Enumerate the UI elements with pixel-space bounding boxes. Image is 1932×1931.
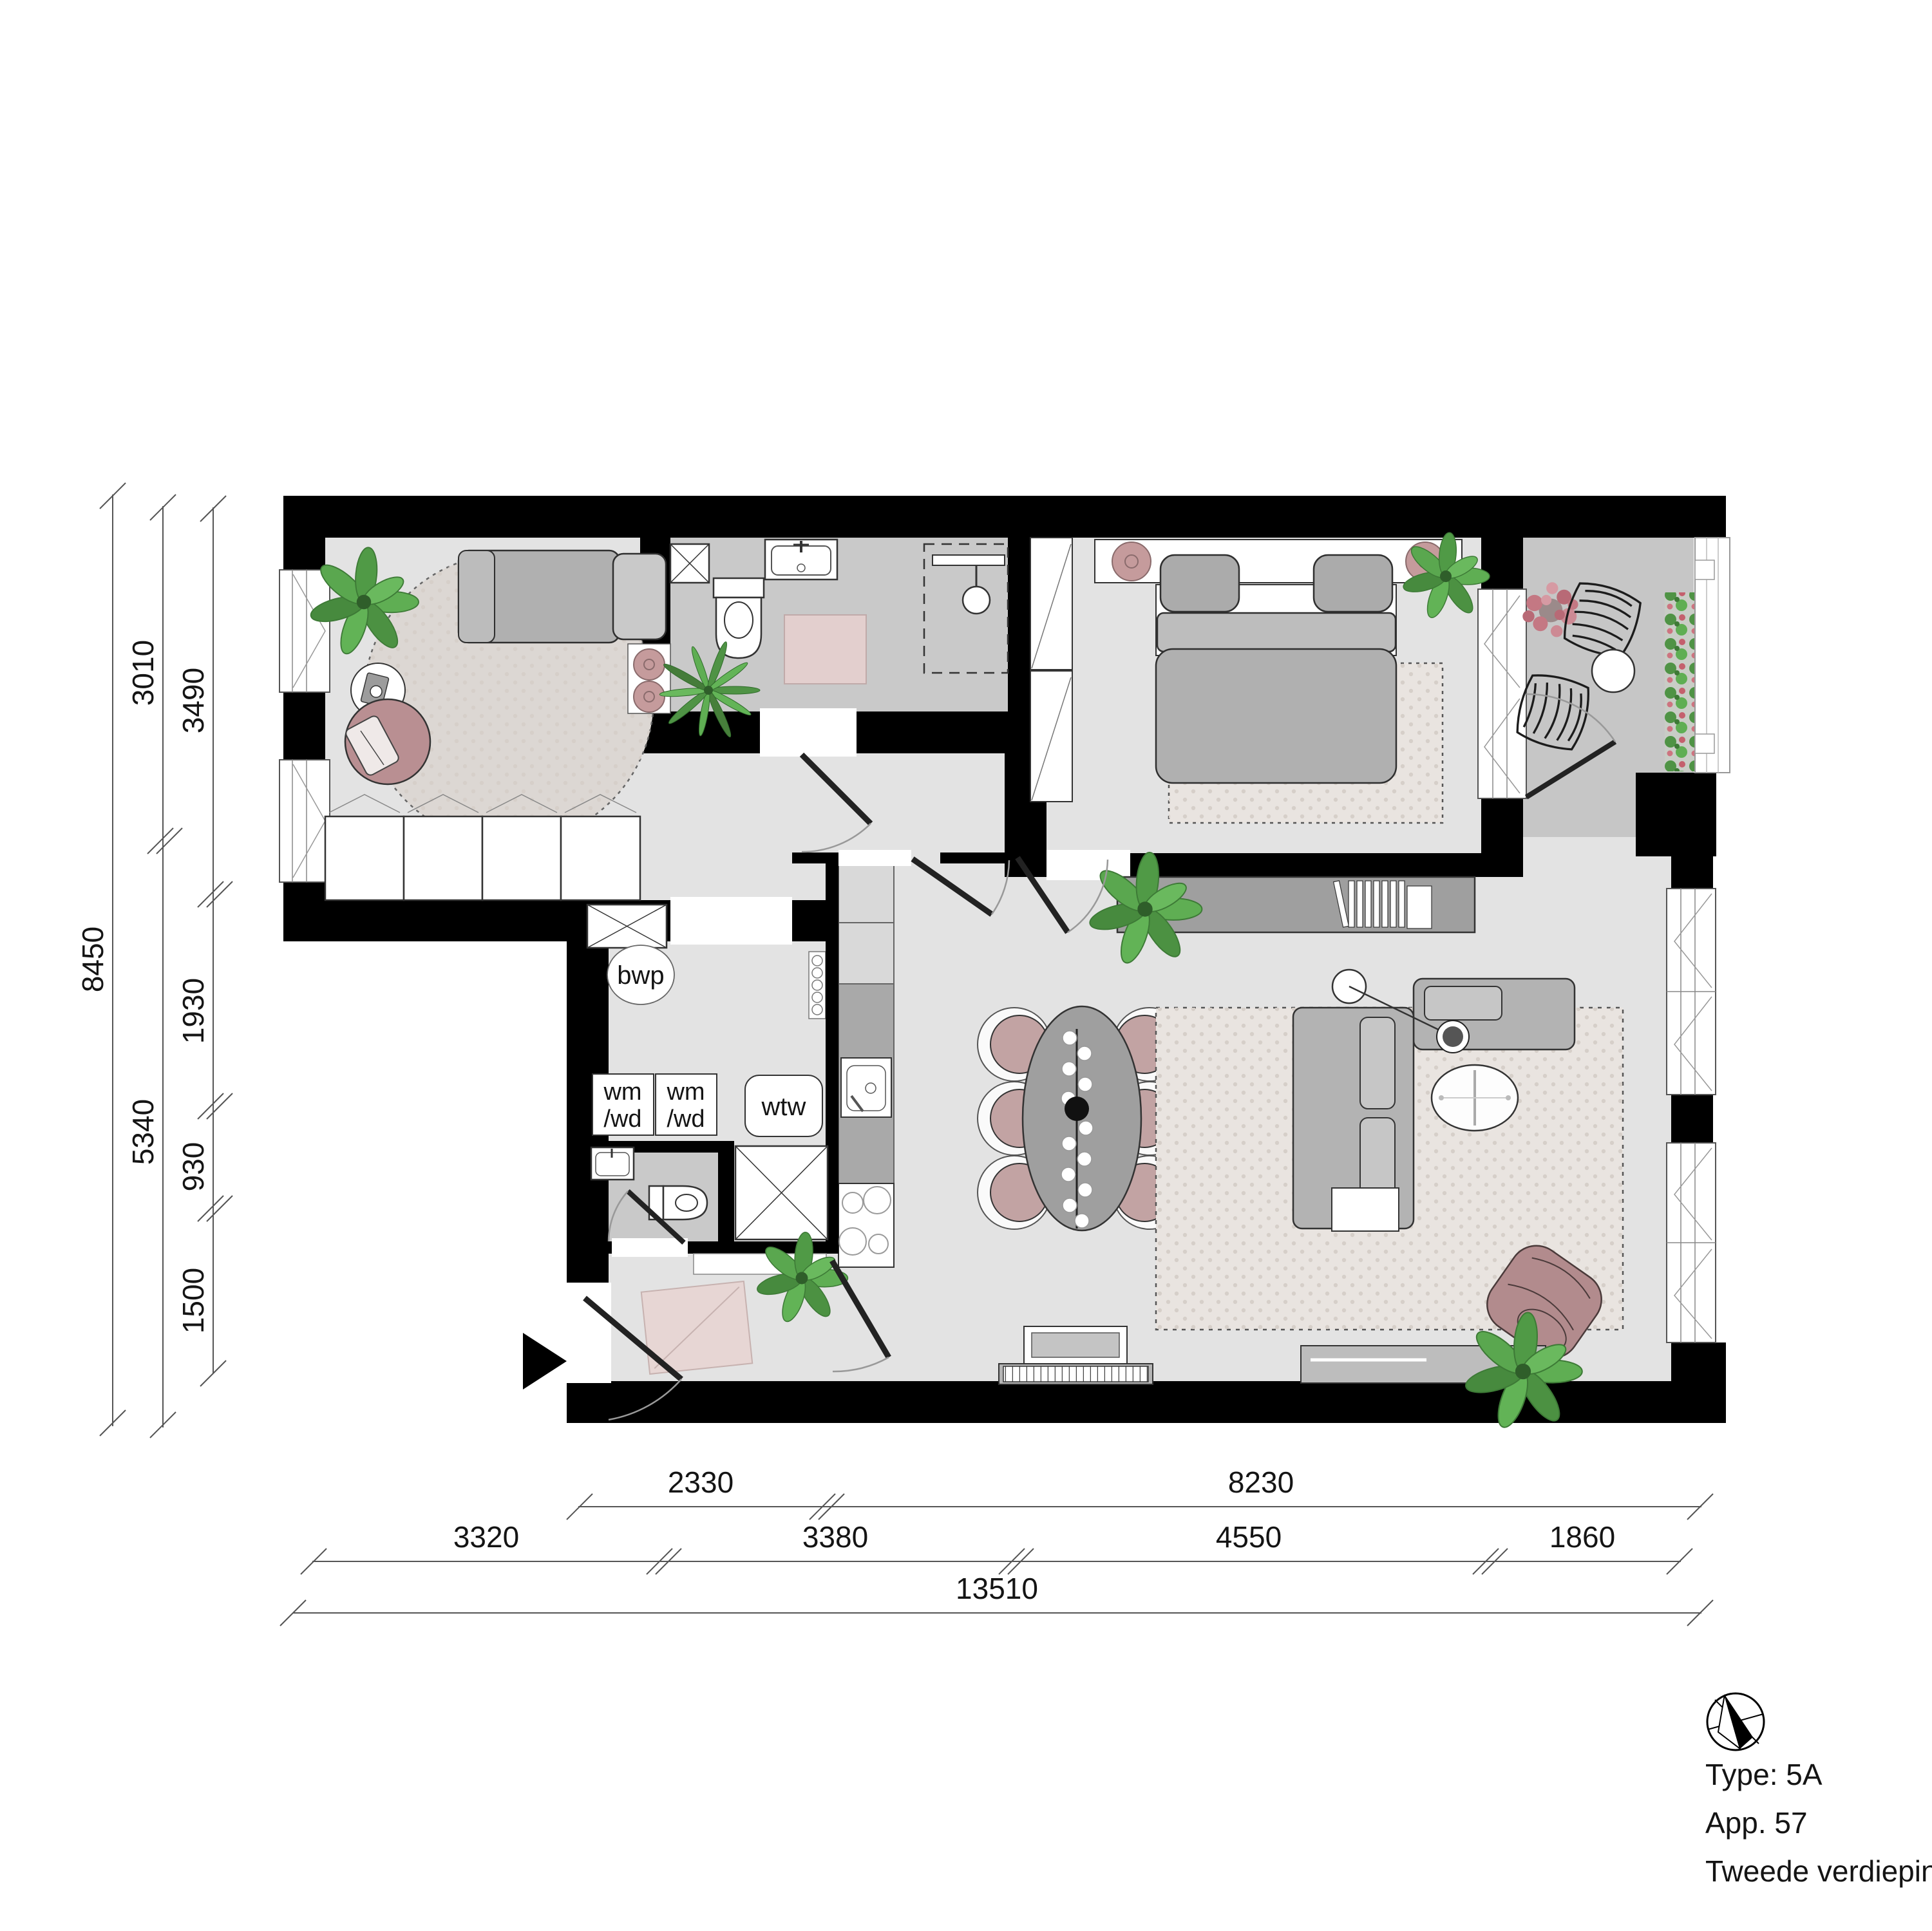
- svg-text:5340: 5340: [126, 1099, 160, 1165]
- balcony-table: [1592, 650, 1634, 692]
- floor-label: Tweede verdieping: [1705, 1854, 1932, 1888]
- svg-text:wtw: wtw: [761, 1093, 806, 1121]
- svg-text:/wd: /wd: [667, 1106, 705, 1133]
- svg-text:wm: wm: [666, 1079, 705, 1106]
- svg-text:2330: 2330: [668, 1465, 734, 1499]
- wall-right-corner: [1671, 1342, 1726, 1407]
- svg-text:3490: 3490: [176, 668, 210, 733]
- dimension-left: [100, 483, 232, 1438]
- toilet-bathroom: [714, 578, 764, 658]
- armchair-pink-room2: [344, 699, 430, 784]
- manifold-panel: [809, 952, 826, 1019]
- headboard-shelf: [1095, 540, 1462, 583]
- bwp-label: bwp: [617, 961, 664, 990]
- window-right-1: [1667, 889, 1716, 1095]
- shower-cabin: [735, 1146, 828, 1239]
- svg-text:4550: 4550: [1216, 1520, 1282, 1554]
- wall-right-pier-1: [1671, 856, 1713, 889]
- svg-text:3010: 3010: [126, 640, 160, 706]
- window-right-2: [1667, 1143, 1716, 1342]
- wall-toilet-right: [718, 1141, 734, 1241]
- double-bed: [1156, 555, 1396, 783]
- bedroom-closet: [1030, 538, 1072, 802]
- washer-2: wm /wd: [656, 1074, 717, 1135]
- kitchen-cooktop: [838, 1183, 894, 1267]
- floorplan-page: bwp wm /wd wm /wd wtw: [0, 0, 1932, 1931]
- north-arrow-icon: [1707, 1693, 1764, 1750]
- room-2: [308, 547, 670, 900]
- wall-step: [283, 900, 609, 941]
- washer-1: wm /wd: [592, 1074, 654, 1135]
- svg-text:wm: wm: [603, 1079, 641, 1106]
- svg-text:930: 930: [176, 1142, 210, 1192]
- wall-balcony-block: [1636, 773, 1716, 856]
- svg-text:13510: 13510: [956, 1572, 1038, 1605]
- kitchen-counter: [838, 863, 894, 1267]
- vanity-sink: [765, 540, 837, 579]
- svg-text:/wd: /wd: [603, 1106, 641, 1133]
- window-left-2: [279, 760, 330, 882]
- svg-text:3380: 3380: [802, 1520, 868, 1554]
- svg-text:1930: 1930: [176, 978, 210, 1044]
- wtw-unit: wtw: [745, 1075, 822, 1136]
- title-block: Type: 5A App. 57 Tweede verdieping: [1705, 1758, 1932, 1888]
- wall-hall-thin-left: [792, 852, 838, 863]
- svg-text:3320: 3320: [453, 1520, 519, 1554]
- ottoman: [1332, 1188, 1399, 1231]
- entry-arrow-icon: [523, 1333, 567, 1389]
- record-collection: [1334, 881, 1432, 928]
- dining-set: [978, 1006, 1186, 1230]
- window-left-1: [279, 570, 330, 692]
- wall-bath-closet: [1008, 538, 1030, 711]
- dimension-bottom: [280, 1494, 1713, 1626]
- coffee-table: [1432, 1065, 1518, 1131]
- type-label: Type: 5A: [1705, 1758, 1823, 1791]
- wall-right-pier-2: [1671, 1095, 1713, 1143]
- dimension-bottom-labels: 2330 8230 3320 3380 4550 1860 13510: [453, 1465, 1615, 1605]
- wall-hall-thin-right: [940, 852, 1005, 863]
- window-balcony-door: [1478, 589, 1526, 798]
- toilet-wc: [649, 1186, 707, 1220]
- floor-plan-svg: bwp wm /wd wm /wd wtw: [0, 0, 1932, 1931]
- bath-mat: [784, 615, 866, 684]
- svg-text:1500: 1500: [176, 1268, 210, 1333]
- wall-niche-shelf: [628, 644, 670, 713]
- apartment-label: App. 57: [1705, 1806, 1808, 1840]
- svg-text:8450: 8450: [76, 927, 109, 992]
- balcony-railing: [1695, 538, 1730, 773]
- single-bed: [459, 551, 666, 643]
- shaft-tech: [587, 905, 667, 948]
- balcony-planter: [1665, 592, 1694, 771]
- wall-bedroom-right-bottom: [1481, 798, 1523, 877]
- shaft-bathroom: [670, 544, 709, 583]
- dimension-left-labels: 8450 3010 5340 3490 1930 930 1500: [76, 640, 210, 1333]
- svg-text:1860: 1860: [1549, 1520, 1615, 1554]
- svg-text:8230: 8230: [1228, 1465, 1294, 1499]
